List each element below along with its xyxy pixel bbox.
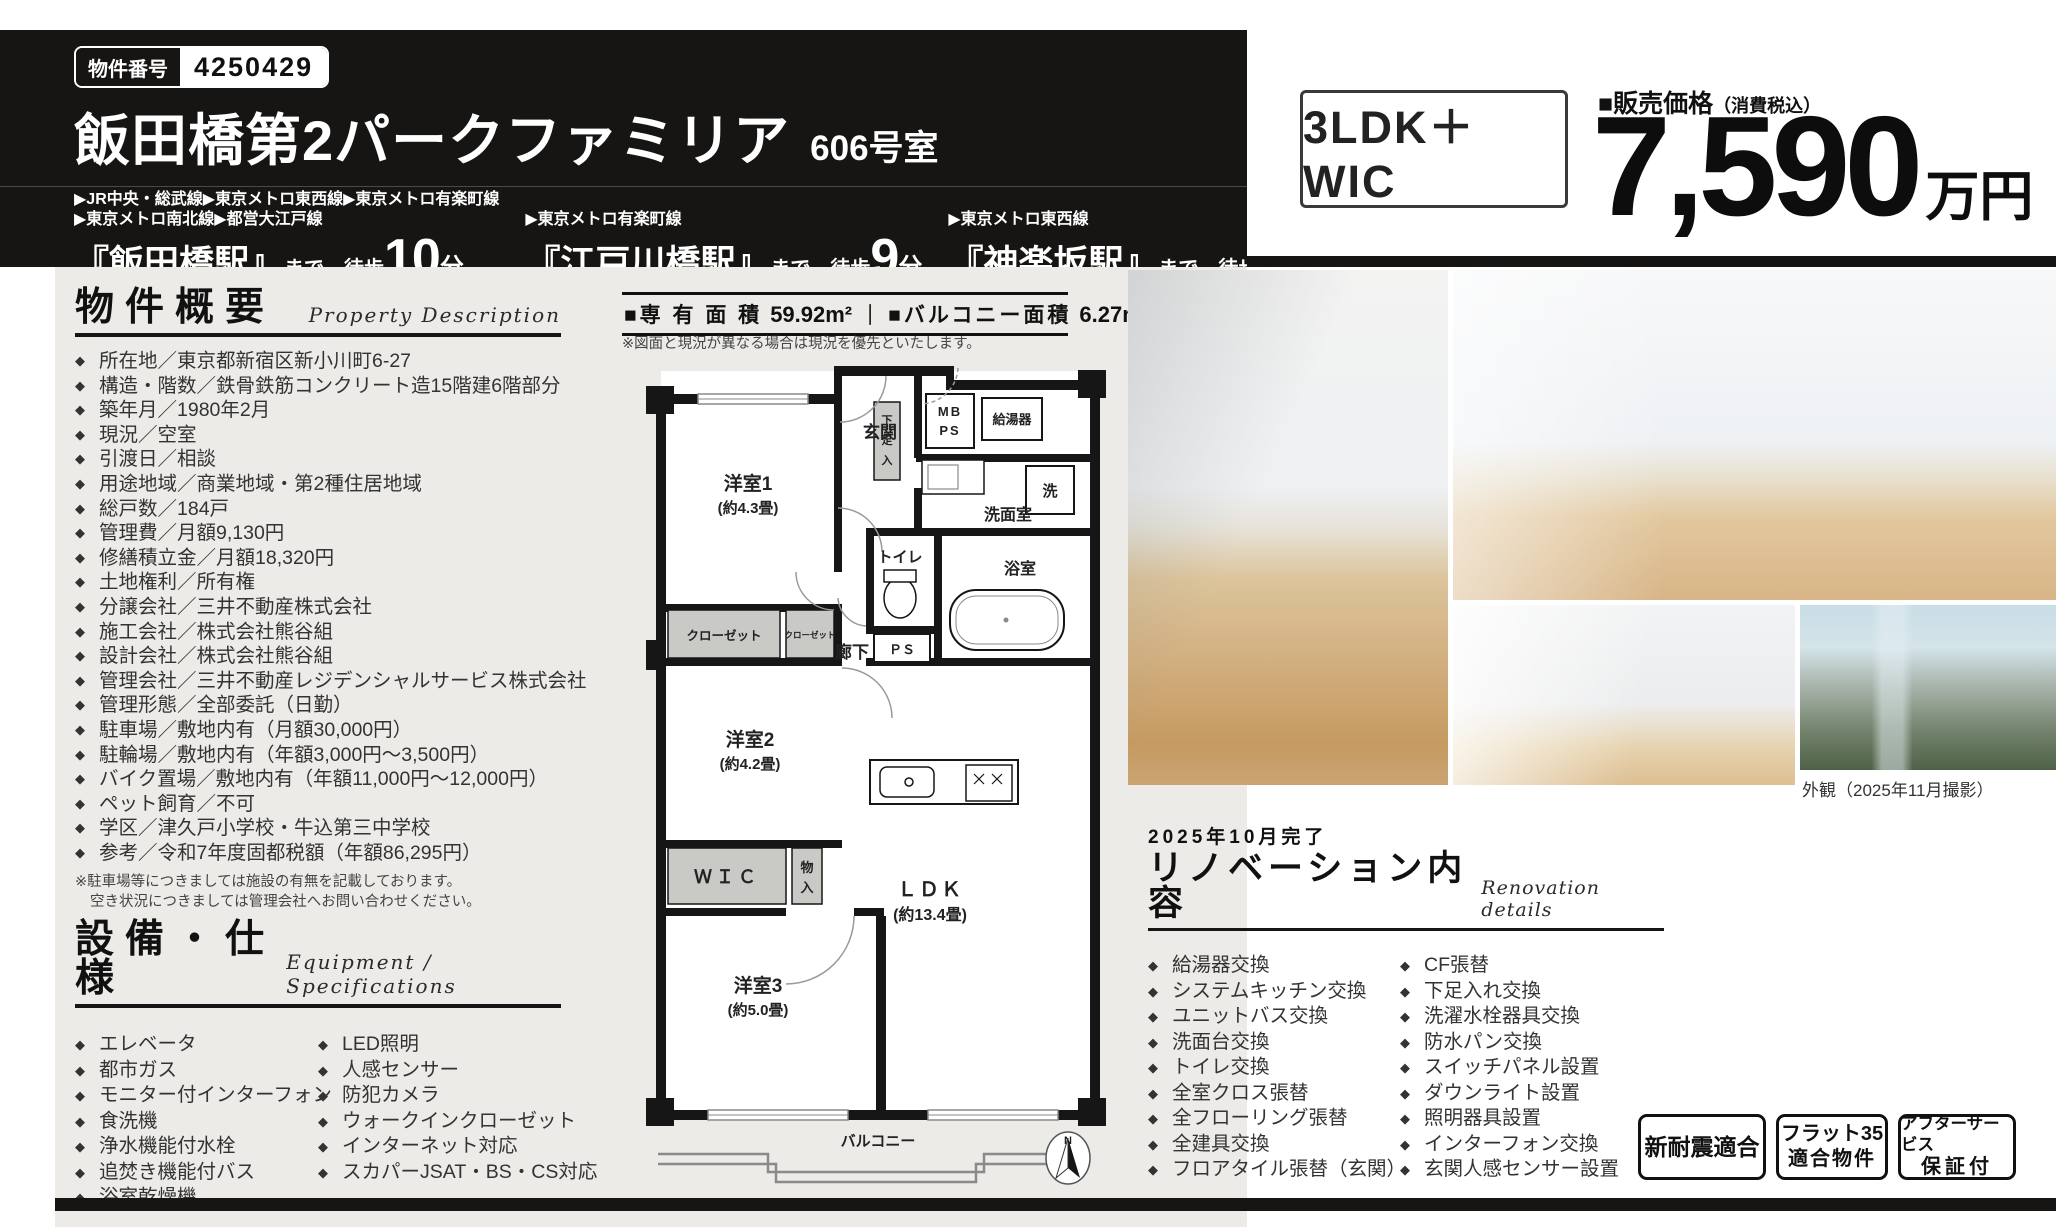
photo-living-dining [1453, 270, 2056, 600]
badge-flat35: フラット35 適合物件 [1776, 1114, 1888, 1180]
overview-item: 管理形態／全部委託（日勤） [75, 693, 561, 718]
layout-type-badge: 3LDK＋WIC [1300, 90, 1568, 208]
renovation-item: 全室クロス張替 [1148, 1081, 1400, 1107]
equipment-col2: LED照明 人感センサー 防犯カメラ ウォークインクローゼット インターネット対… [318, 1032, 561, 1211]
price-value: 7,590 万円 [1592, 96, 2033, 238]
ldk-label: ＬＤＫ [897, 879, 963, 901]
equipment-item: 食洗機 [75, 1109, 318, 1135]
balcony-area-label: ■バルコニー面積 [888, 299, 1071, 329]
equipment-item: 追焚き機能付バス [75, 1160, 318, 1186]
overview-item: 設計会社／株式会社熊谷組 [75, 644, 561, 669]
overview-item: 駐輪場／敷地内有（年額3,000円〜3,500円） [75, 743, 561, 768]
station-lines: ▶東京メトロ東西線 [948, 210, 1338, 230]
renovation-item: 全建具交換 [1148, 1132, 1400, 1158]
closet1-label: クローゼット [686, 628, 761, 643]
badge-text: 新耐震適合 [1645, 1133, 1760, 1162]
section-equipment: 設備・仕様 Equipment / Specifications エレベータ 都… [75, 920, 561, 1211]
renovation-heading-en: Renovation details [1481, 877, 1664, 921]
renovation-item: 照明器具設置 [1400, 1106, 1652, 1132]
renovation-item: 下足入れ交換 [1400, 979, 1652, 1005]
building-title: 飯田橋第2パークファミリア [74, 96, 790, 177]
monoire-char1: 物 [800, 860, 813, 875]
north-arrow-icon: N [1046, 1132, 1090, 1184]
equipment-item: 浄水機能付水栓 [75, 1134, 318, 1160]
badge-earthquake-standard: 新耐震適合 [1638, 1114, 1766, 1180]
overview-heading: 物件概要 [75, 288, 275, 327]
renovation-item: スイッチパネル設置 [1400, 1055, 1652, 1081]
renovation-item: システムキッチン交換 [1148, 979, 1400, 1005]
overview-item: 所在地／東京都新宿区新小川町6-27 [75, 349, 561, 374]
balcony-label: バルコニー [841, 1133, 916, 1150]
renovation-item: トイレ交換 [1148, 1055, 1400, 1081]
overview-item: 施工会社／株式会社熊谷組 [75, 620, 561, 645]
renovation-item: インターフォン交換 [1400, 1132, 1652, 1158]
ps-top-label: PS [939, 423, 960, 438]
property-number-label: 物件番号 [76, 48, 180, 86]
renovation-item: 防水パン交換 [1400, 1030, 1652, 1056]
overview-item: 駐車場／敷地内有（月額30,000円） [75, 718, 561, 743]
room3-size: (約5.0畳) [728, 1001, 789, 1019]
overview-item: 総戸数／184戸 [75, 497, 561, 522]
section-property-overview: 物件概要 Property Description 所在地／東京都新宿区新小川町… [75, 288, 561, 913]
toilet-label: トイレ [877, 549, 922, 566]
photo-exterior [1800, 605, 2056, 770]
station-lines: ▶東京メトロ南北線▶都営大江戸線 [74, 210, 499, 230]
exterior-photo-caption: 外観（2025年11月撮影） [1802, 776, 1993, 801]
header-band: 物件番号 4250429 飯田橋第2パークファミリア 606号室 ▶JR中央・総… [0, 30, 1247, 267]
overview-item: 構造・階数／鉄骨鉄筋コンクリート造15階建6階部分 [75, 374, 561, 399]
renovation-item: ダウンライト設置 [1400, 1081, 1652, 1107]
equipment-item: スカパーJSAT・BS・CS対応 [318, 1160, 561, 1186]
equipment-item: インターネット対応 [318, 1134, 561, 1160]
wic-label: ＷＩＣ [694, 867, 760, 887]
room1-size: (約4.3畳) [718, 499, 779, 517]
overview-list: 所在地／東京都新宿区新小川町6-27 構造・階数／鉄骨鉄筋コンクリート造15階建… [75, 349, 561, 865]
unit-number: 606号室 [810, 120, 938, 171]
getabako-char2: 足 [882, 434, 894, 447]
equipment-item: 都市ガス [75, 1058, 318, 1084]
mb-label: MB [938, 404, 962, 419]
renovation-date: 2025年10月完了 [1148, 822, 1664, 849]
photo-bedroom [1453, 605, 1795, 785]
kyutoki-label: 給湯器 [992, 412, 1032, 427]
overview-item: 管理費／月額9,130円 [75, 521, 561, 546]
photo-kitchen [1128, 270, 1448, 785]
badge-text: アフターサービス [1901, 1114, 2013, 1155]
laundry-label: 洗 [1042, 482, 1057, 500]
renovation-item: 洗濯水栓器具交換 [1400, 1004, 1652, 1030]
room1-label: 洋室1 [724, 472, 773, 495]
price-unit: 万円 [1925, 152, 2033, 231]
overview-note-line1: ※駐車場等につきましては施設の有無を記載しております。 [75, 873, 561, 893]
renovation-item: 洗面台交換 [1148, 1030, 1400, 1056]
renovation-item: 給湯器交換 [1148, 953, 1400, 979]
equipment-heading-en: Equipment / Specifications [286, 950, 561, 998]
renovation-item: ユニットバス交換 [1148, 1004, 1400, 1030]
equipment-item: LED照明 [318, 1032, 561, 1058]
station-lines: ▶東京メトロ有楽町線 [525, 210, 922, 230]
equipment-item: モニター付インターフォン [75, 1083, 318, 1109]
ps-label: ＰＳ [889, 642, 915, 657]
ldk-size: (約13.4畳) [893, 905, 967, 924]
renovation-col2: CF張替 下足入れ交換 洗濯水栓器具交換 防水パン交換 スイッチパネル設置 ダウ… [1400, 953, 1652, 1183]
bath-label: 浴室 [1004, 559, 1036, 578]
equipment-item: エレベータ [75, 1032, 318, 1058]
monoire-char2: 入 [800, 880, 813, 895]
overview-note-line2: 空き状況につきましては管理会社へお問い合わせください。 [75, 893, 561, 913]
floorplan-drawing: N 洋室1 (約4.3畳) 玄関 廊下 MB PS 給湯器 洗 洗面室 トイレ … [628, 358, 1110, 1198]
overview-item: 土地権利／所有権 [75, 570, 561, 595]
equipment-item: 防犯カメラ [318, 1083, 561, 1109]
room2-label: 洋室2 [726, 728, 775, 751]
overview-item: 引渡日／相談 [75, 447, 561, 472]
section-renovation: 2025年10月完了 リノベーション内容 Renovation details … [1148, 822, 1664, 1183]
overview-item: 学区／津久戸小学校・牛込第三中学校 [75, 816, 561, 841]
renovation-heading: リノベーション内容 [1148, 851, 1481, 921]
overview-item: 現況／空室 [75, 423, 561, 448]
overview-item: 築年月／1980年2月 [75, 398, 561, 423]
overview-item: 用途地域／商業地域・第2種住居地域 [75, 472, 561, 497]
overview-item: 参考／令和7年度固都税額（年額86,295円） [75, 841, 561, 866]
closet2-label: クローゼット [784, 630, 835, 640]
area-separator: ｜ [860, 299, 880, 328]
overview-heading-en: Property Description [309, 303, 561, 327]
getabako-char3: 入 [882, 454, 893, 467]
renovation-item: 玄関人感センサー設置 [1400, 1157, 1652, 1183]
badge-text: フラット35 [1781, 1122, 1883, 1147]
overview-item: 分譲会社／三井不動産株式会社 [75, 595, 561, 620]
room2-size: (約4.2畳) [720, 755, 781, 773]
price-amount: 7,590 [1592, 96, 1917, 238]
overview-item: 修繕積立金／月額18,320円 [75, 546, 561, 571]
property-number-value: 4250429 [180, 48, 327, 86]
renovation-col1: 給湯器交換 システムキッチン交換 ユニットバス交換 洗面台交換 トイレ交換 全室… [1148, 953, 1400, 1183]
header-divider [0, 186, 1247, 187]
bottom-rule-bar [55, 1198, 2056, 1211]
price-underline-rule [1247, 256, 2056, 267]
badge-after-service: アフターサービス 保証付 [1898, 1114, 2016, 1180]
overview-item: バイク置場／敷地内有（年額11,000円〜12,000円） [75, 767, 561, 792]
overview-item: 管理会社／三井不動産レジデンシャルサービス株式会社 [75, 669, 561, 694]
equipment-item: 人感センサー [318, 1058, 561, 1084]
badge-text: 保証付 [1921, 1155, 1993, 1180]
room3-label: 洋室3 [734, 974, 783, 997]
station-lines: ▶JR中央・総武線▶東京メトロ東西線▶東京メトロ有楽町線 [74, 190, 499, 210]
renovation-item: CF張替 [1400, 953, 1652, 979]
senmen-label: 洗面室 [984, 505, 1032, 524]
area-summary-bar: ■専 有 面 積 59.92m² ｜ ■バルコニー面積 6.27m² [622, 292, 1068, 336]
flyer-page: 物件番号 4250429 飯田橋第2パークファミリア 606号室 ▶JR中央・総… [0, 0, 2056, 1227]
renovation-item: 全フローリング張替 [1148, 1106, 1400, 1132]
renovation-item: フロアタイル張替（玄関） [1148, 1157, 1400, 1183]
equipment-item: ウォークインクローゼット [318, 1109, 561, 1135]
exclusive-area-value: 59.92m² [770, 302, 852, 328]
rouka-label: 廊下 [835, 642, 869, 662]
property-number-box: 物件番号 4250429 [74, 46, 329, 88]
floorplan-disclaimer: ※図面と現況が異なる場合は現況を優先といたします。 [622, 332, 981, 353]
overview-item: ペット飼育／不可 [75, 792, 561, 817]
equipment-heading: 設備・仕様 [75, 920, 286, 998]
getabako-char1: 下 [882, 414, 893, 427]
equipment-col1: エレベータ 都市ガス モニター付インターフォン 食洗機 浄水機能付水栓 追焚き機… [75, 1032, 318, 1211]
exclusive-area-label: ■専 有 面 積 [624, 299, 762, 329]
badge-text: 適合物件 [1788, 1147, 1876, 1172]
